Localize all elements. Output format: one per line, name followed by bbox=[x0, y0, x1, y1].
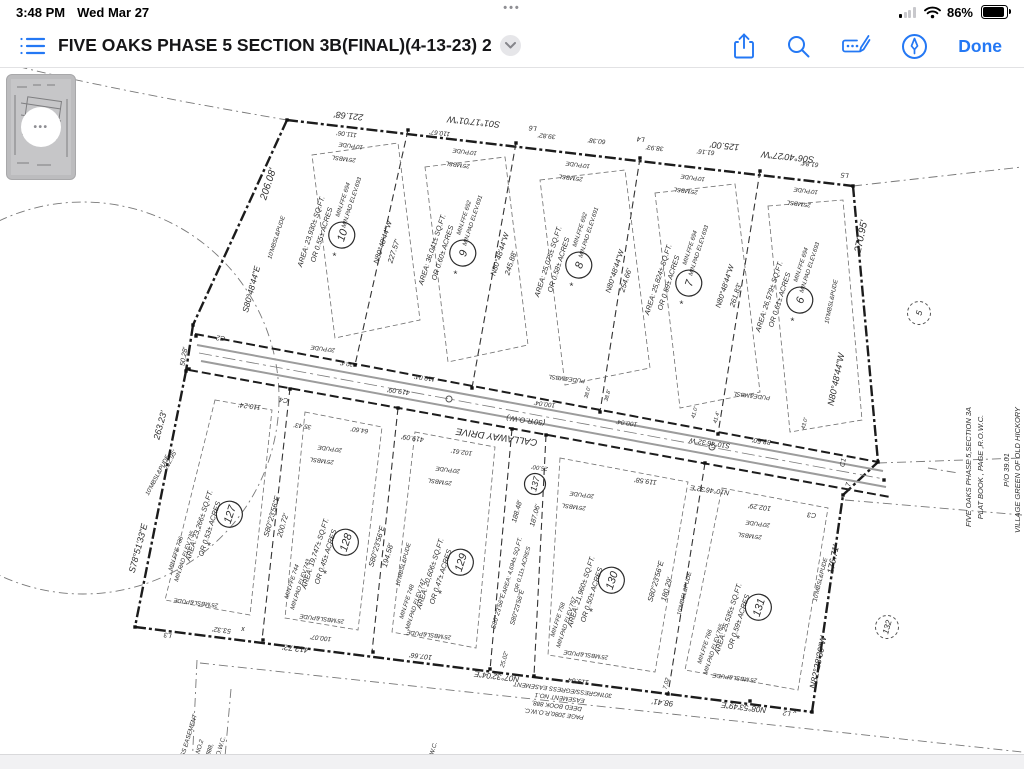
plat-label: FIVE OAKS PHASE 5,SECTION 3A bbox=[964, 407, 973, 527]
wifi-icon bbox=[924, 6, 941, 19]
multitask-dots-icon: ••• bbox=[503, 2, 521, 14]
boundary-vertex bbox=[716, 432, 719, 435]
boundary-vertex bbox=[406, 128, 409, 131]
plat-label: 38.0' bbox=[584, 385, 593, 399]
offsite-line bbox=[845, 500, 1022, 515]
boundary-vertex bbox=[666, 692, 669, 695]
pdf-page-view[interactable]: 221.68'S01°17'01"W110.67'L639.82'60.38'L… bbox=[0, 68, 1024, 768]
boundary-vertex bbox=[598, 410, 601, 413]
plat-label: L4 bbox=[637, 135, 646, 143]
plat-label: 25'MBSL bbox=[562, 502, 588, 511]
share-button[interactable] bbox=[732, 32, 756, 60]
setback-lot131 bbox=[685, 488, 828, 690]
plat-label: * bbox=[452, 269, 464, 277]
boundary-vertex bbox=[876, 460, 879, 463]
plat-label: 20'PUDE bbox=[744, 518, 771, 527]
plat-label: 180.29' bbox=[659, 576, 675, 602]
lot-7: AREA: 25,824± SQ.FT.OR 0.59± ACRES*7MIN.… bbox=[642, 214, 720, 329]
lot-127: AREA: 23,266± SQ.FT.OR 0.53± ACRES*127MI… bbox=[166, 485, 247, 594]
boundary-vertex bbox=[532, 674, 535, 677]
plat-label: 25'MBSL bbox=[446, 160, 472, 169]
plat-label: 60.38' bbox=[587, 136, 606, 145]
boundary-vertex bbox=[851, 184, 854, 187]
plat-label: 227.57' bbox=[385, 238, 402, 265]
lot-9: AREA: 36,041± SQ.FT.OR 0.60± ACRES*9MIN.… bbox=[416, 185, 494, 299]
plat-label: 25'MBSL&PUDE bbox=[405, 628, 452, 640]
plat-label: 25'MBSL bbox=[332, 154, 358, 163]
markup-icon bbox=[841, 34, 871, 58]
plat-label: 10'MBSL&PUDE bbox=[395, 541, 413, 587]
plat-label: 107.66' bbox=[408, 651, 432, 661]
boundary-vertex bbox=[544, 433, 547, 436]
plat-label: L7 bbox=[844, 481, 853, 491]
plat-label: L3 bbox=[163, 631, 172, 639]
boundary-vertex bbox=[841, 493, 844, 496]
plat-label: x bbox=[240, 626, 245, 633]
plat-label: 20'PUDE bbox=[309, 343, 336, 352]
thumbnail-more-dots: ••• bbox=[21, 107, 61, 147]
boundary-vertex bbox=[470, 386, 473, 389]
plat-label: S80°23'56"E bbox=[508, 588, 526, 626]
plat-label: 41.0' bbox=[691, 405, 700, 419]
plat-label: P/O 39.01 bbox=[1002, 453, 1011, 487]
document-title[interactable]: FIVE OAKS PHASE 5 SECTION 3B(FINAL)(4-13… bbox=[58, 35, 492, 56]
plat-label: 7.02 bbox=[663, 677, 672, 690]
plat-label: 8 bbox=[573, 260, 587, 270]
plat-label: 137 bbox=[528, 475, 542, 493]
plat-label: N10°46'32"E bbox=[689, 483, 730, 496]
plat-label: 25'MBSL&PUDE bbox=[711, 671, 758, 683]
plat-label: 25'MBSL bbox=[674, 186, 700, 195]
boundary-west bbox=[135, 371, 186, 627]
plat-label: 25'MBSL bbox=[310, 456, 336, 465]
plat-label: 127 bbox=[222, 503, 239, 525]
plat-label: C3 bbox=[807, 510, 817, 518]
plat-label: 6 bbox=[794, 295, 808, 305]
plat-label: 53.32' bbox=[211, 625, 231, 634]
plat-label: C4 bbox=[279, 395, 289, 403]
plat-label: 419.09' bbox=[400, 432, 424, 442]
boundary-vertex bbox=[261, 638, 264, 641]
lot-10: AREA: 23,930± SQ.FT.OR 0.55± ACRES*10MIN… bbox=[295, 166, 373, 281]
pen-circle-icon bbox=[901, 33, 928, 60]
plat-label: 110.04' bbox=[413, 372, 435, 382]
pencil-tool-button[interactable] bbox=[901, 33, 928, 60]
plat-label: 188.48' bbox=[511, 499, 524, 523]
setback-lot6 bbox=[768, 200, 862, 432]
plat-label: 10'MBSL&PUDE bbox=[677, 570, 694, 616]
plat-label: 25'MBSL&PUDE bbox=[298, 612, 345, 624]
plat-label: VILLAGE GREEN OF OLD HICKORY bbox=[1013, 406, 1022, 533]
boundary-vertex bbox=[187, 367, 190, 370]
plat-label: 10'PUDE bbox=[451, 146, 477, 155]
plat-label: x bbox=[792, 708, 797, 715]
plat-label: 39.82' bbox=[537, 131, 556, 140]
plat-label: 20'PUDE bbox=[316, 443, 343, 452]
plat-label: 5 bbox=[914, 309, 925, 316]
plat-label: 10'PUDE bbox=[792, 185, 818, 194]
plat-label: 206.08' bbox=[258, 166, 279, 202]
plat-label: CALLAWAY DRIVE bbox=[455, 425, 539, 447]
done-button[interactable]: Done bbox=[958, 36, 1002, 57]
plat-label: N80°48'44"W bbox=[826, 351, 847, 407]
plat-label: 38.8' bbox=[604, 388, 613, 402]
status-bar: 3:48 PM Wed Mar 27 ••• 86% bbox=[0, 0, 1024, 24]
setback-lot130 bbox=[548, 458, 688, 672]
plat-label: S78°51'33"E bbox=[127, 522, 150, 574]
lot-6: AREA: 26,579± SQ.FT.OR 0.61± ACRES*6MIN.… bbox=[753, 231, 831, 346]
markup-field-button[interactable] bbox=[841, 34, 871, 58]
plat-label: 20.4' bbox=[339, 359, 354, 367]
plat-label: 100.07' bbox=[309, 633, 332, 643]
clock-date: Wed Mar 27 bbox=[77, 5, 149, 20]
plat-label: S80°48'44"E bbox=[240, 265, 262, 314]
plat-label: 221.68' bbox=[333, 109, 364, 122]
plat-label: 111.06' bbox=[336, 129, 358, 138]
search-icon bbox=[786, 34, 811, 59]
plat-label: 194.58' bbox=[380, 542, 396, 568]
lot-128: AREA: 19,747± SQ.FT.OR 0.45± ACRES*128MI… bbox=[282, 513, 363, 622]
plat-label: 10'PUDE bbox=[337, 140, 363, 149]
plat-label: 110.24' bbox=[238, 401, 262, 411]
plat-label: 129 bbox=[453, 552, 470, 573]
boundary-vertex bbox=[810, 710, 813, 713]
plat-label: 10'PUDE bbox=[564, 159, 590, 168]
plat-label: 25.00' bbox=[531, 463, 550, 471]
plat-label: 25'MBSL bbox=[559, 173, 585, 182]
battery-percent: 86% bbox=[947, 5, 973, 20]
plat-label: S01°17'01"W bbox=[445, 114, 500, 130]
offsite-line bbox=[878, 458, 1022, 463]
pdf-toolbar: FIVE OAKS PHASE 5 SECTION 3B(FINAL)(4-13… bbox=[0, 24, 1024, 68]
setback-lot10 bbox=[312, 143, 420, 338]
plat-label: 10'MBSL&PUDE bbox=[813, 556, 830, 602]
search-button[interactable] bbox=[786, 34, 811, 59]
boundary-vertex bbox=[488, 667, 491, 670]
boundary-vertex bbox=[194, 334, 197, 337]
road-pavement-edge bbox=[197, 345, 883, 471]
plat-label: 25'MBSL bbox=[787, 199, 813, 208]
page-edge-strip bbox=[0, 754, 1024, 769]
plat-label: 38.93' bbox=[645, 143, 664, 152]
plat-label: C2 bbox=[216, 333, 226, 341]
plat-label: 102.61' bbox=[450, 446, 473, 456]
plat-label: 245.88' bbox=[502, 250, 519, 277]
plat-label: 9 bbox=[457, 249, 470, 259]
boundary-vertex bbox=[133, 625, 136, 628]
plat-label: S80°23'56"E bbox=[489, 592, 507, 630]
plat-label: 254.66' bbox=[617, 267, 634, 294]
plat-label: 25'MBSL bbox=[738, 531, 764, 540]
plat-label: 200.72' bbox=[275, 512, 291, 539]
plat-label: 98.41' bbox=[651, 697, 674, 709]
plat-label: 35.43' bbox=[293, 421, 312, 430]
plat-label: 110.67' bbox=[428, 128, 450, 137]
boundary-vertex bbox=[638, 156, 641, 159]
boundary-vertex bbox=[285, 118, 288, 121]
plat-label: L2 bbox=[782, 709, 791, 717]
boundary-vertex bbox=[510, 427, 513, 430]
plat-label: 100.04' bbox=[615, 417, 638, 427]
boundary-vertex bbox=[184, 369, 187, 372]
clock-time: 3:48 PM bbox=[16, 5, 65, 20]
boundary-vertex bbox=[353, 363, 356, 366]
page-thumbnail[interactable]: ••• bbox=[6, 74, 76, 180]
plat-label: 270.95' bbox=[853, 218, 871, 254]
plat-label: * bbox=[331, 251, 343, 259]
boundary-vertex bbox=[371, 650, 374, 653]
leader-line bbox=[928, 468, 958, 473]
plat-label: 61.84' bbox=[800, 159, 819, 168]
boundary-vertex bbox=[758, 169, 761, 172]
boundary-vertex bbox=[514, 141, 517, 144]
plat-label: 412.72' bbox=[282, 642, 309, 654]
plat-label: 128 bbox=[338, 531, 355, 553]
battery-icon bbox=[981, 5, 1008, 19]
title-menu-button[interactable] bbox=[500, 35, 521, 56]
plat-label: 43.0' bbox=[801, 416, 810, 430]
plat-label: 25'MBSL&PUDE bbox=[172, 596, 219, 608]
lot-8: AREA: 25,075± SQ.FT.OR 0.58± ACRES*8MIN.… bbox=[532, 197, 610, 311]
plat-drawing: 221.68'S01°17'01"W110.67'L639.82'60.38'L… bbox=[0, 68, 1024, 768]
plat-label: 10'PUDE bbox=[679, 172, 705, 181]
plat-label: 50.28' bbox=[179, 346, 189, 366]
setback-lot7 bbox=[655, 184, 760, 408]
boundary-vertex bbox=[288, 387, 291, 390]
plat-label: 25.02' bbox=[500, 650, 510, 669]
plat-label: 261.83' bbox=[727, 282, 744, 309]
plat-label: 130 bbox=[604, 569, 621, 591]
easement-line bbox=[200, 663, 1022, 752]
plat-label: N08°53'49"E bbox=[720, 700, 767, 715]
offsite-line bbox=[853, 167, 1022, 186]
plat-label: PLAT BOOK , PAGE ,R.O.W.C. bbox=[976, 415, 985, 519]
boundary-lot10-west bbox=[193, 120, 287, 325]
plat-label: 125.00' bbox=[709, 139, 739, 152]
plat-label: N82°28'30"W bbox=[808, 634, 829, 690]
road-centerline bbox=[199, 353, 884, 479]
plat-label: 88.50' bbox=[751, 436, 771, 446]
plat-label: * bbox=[678, 299, 690, 307]
plat-label: L6 bbox=[529, 124, 538, 132]
plat-label: 119.58' bbox=[634, 475, 658, 485]
plat-label: 25'MBSL bbox=[428, 477, 454, 486]
plat-label: 7 bbox=[683, 278, 697, 288]
boundary-vertex bbox=[191, 323, 194, 326]
plat-label: 187.06' bbox=[529, 503, 542, 527]
boundary-vertex bbox=[882, 478, 885, 481]
plat-label: * bbox=[789, 316, 801, 324]
plat-label: 131 bbox=[751, 597, 768, 618]
chevron-down-icon bbox=[505, 42, 516, 49]
boundary-vertex bbox=[703, 461, 706, 464]
boundary-vertex bbox=[396, 406, 399, 409]
plat-label: 102.29' bbox=[747, 501, 771, 511]
plat-label: 20'PUDE bbox=[568, 489, 595, 498]
plat-label: 20'PUDE bbox=[434, 464, 461, 473]
share-icon bbox=[732, 32, 756, 60]
plat-label: 10'MBSL&PUDE bbox=[824, 278, 839, 324]
plat-label: 419.09' bbox=[386, 385, 410, 395]
lot-131: AREA: 25,535± SQ.FT.OR 0.59± ACRES*131MI… bbox=[695, 578, 776, 687]
cellular-signal-icon bbox=[899, 7, 916, 18]
plat-label: L5 bbox=[841, 171, 850, 179]
plat-label: 119.64' bbox=[566, 676, 590, 686]
plat-label: 10'MBSL&PUDE bbox=[267, 215, 287, 260]
plat-label: * bbox=[568, 281, 580, 289]
plat-label: 64.60' bbox=[350, 425, 369, 434]
boundary-vertex bbox=[748, 699, 751, 702]
plat-label: PUDE&MBSL bbox=[548, 373, 585, 383]
lot-130: AREA: 21,960± SQ.FT.OR 0.50± ACRES*130MI… bbox=[548, 551, 629, 660]
plat-label: PUDE&MBSL bbox=[733, 390, 770, 400]
thumbnails-icon[interactable] bbox=[20, 35, 46, 57]
plat-label: 132 bbox=[880, 619, 893, 636]
plat-label: C1 bbox=[839, 457, 848, 467]
plat-label: 10 bbox=[335, 227, 350, 243]
plat-label: 263.23' bbox=[151, 410, 169, 442]
